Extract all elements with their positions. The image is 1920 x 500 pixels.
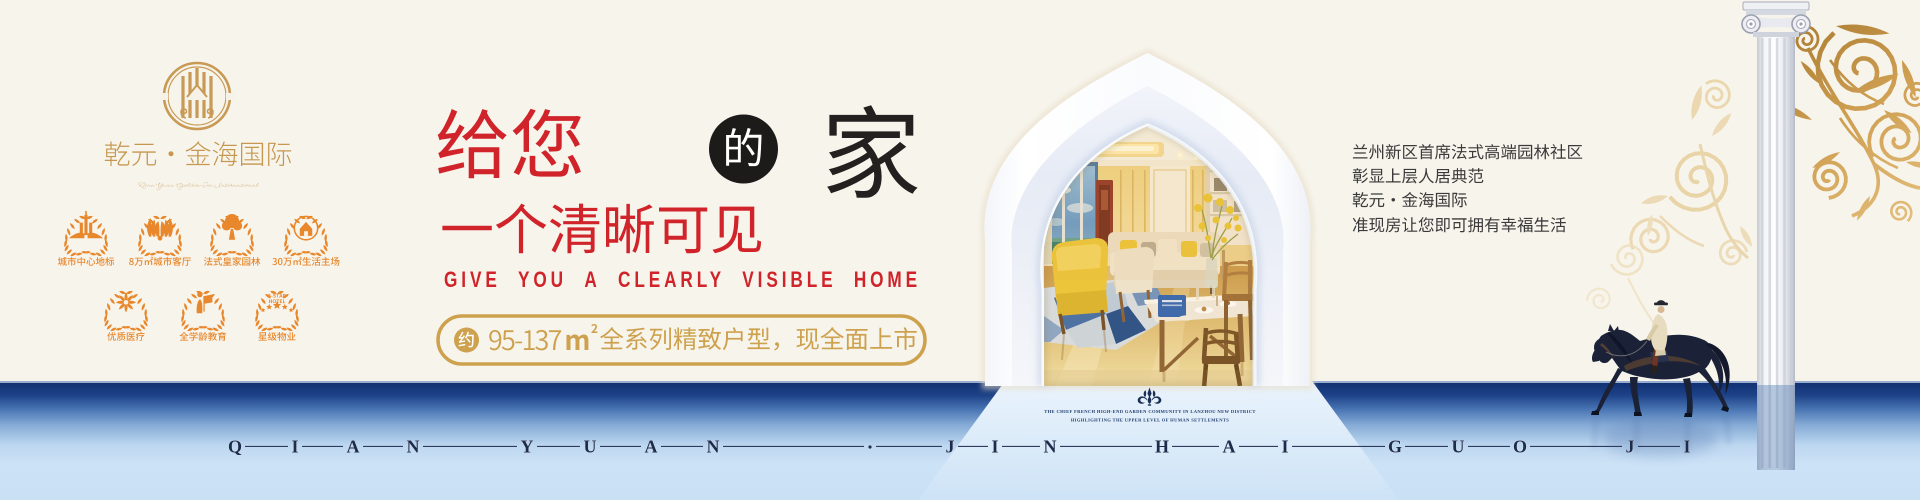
svg-text:U: U: [584, 437, 597, 457]
svg-text:H: H: [1155, 437, 1169, 457]
svg-text:I: I: [291, 437, 298, 457]
svg-text:GIVE YOU A CLEARLY VISIBLE: GIVE YOU A CLEARLY VISIBLE HOME: [444, 267, 921, 292]
svg-text:J: J: [946, 437, 955, 457]
svg-text:J: J: [1626, 437, 1635, 457]
svg-text:A: A: [347, 437, 360, 457]
svg-text:THE CHIEF FRENCH HIGH-END GARD: THE CHIEF FRENCH HIGH-END GARDEN COMMUNI…: [1044, 409, 1256, 414]
svg-text:A: A: [1223, 437, 1236, 457]
svg-text:U: U: [1452, 437, 1465, 457]
svg-text:Y: Y: [521, 437, 534, 457]
svg-text:O: O: [1513, 437, 1527, 457]
svg-text:I: I: [1281, 437, 1288, 457]
svg-text:G: G: [1388, 437, 1402, 457]
svg-text:Q: Q: [228, 437, 242, 457]
svg-text:N: N: [1044, 437, 1057, 457]
svg-text:I: I: [1683, 437, 1690, 457]
svg-text:I: I: [991, 437, 998, 457]
svg-text:A: A: [645, 437, 658, 457]
svg-text:N: N: [707, 437, 720, 457]
svg-text:HIGHLIGHTING THE UPPER LEVEL O: HIGHLIGHTING THE UPPER LEVEL OF HUMAN SE…: [1071, 418, 1229, 423]
svg-text:N: N: [407, 437, 420, 457]
